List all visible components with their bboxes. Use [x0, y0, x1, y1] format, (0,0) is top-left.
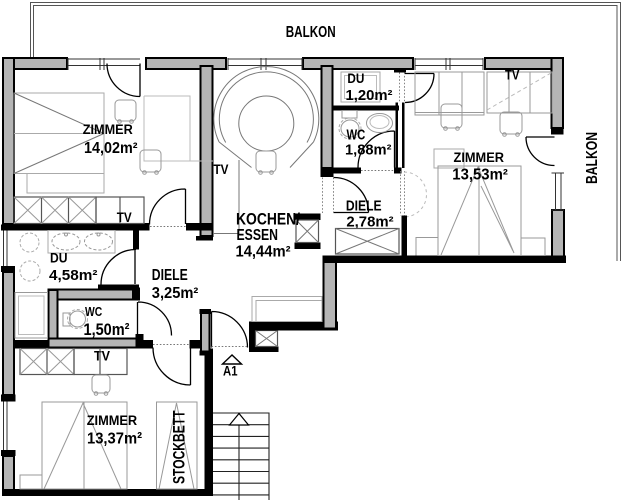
svg-text:DIELE: DIELE	[152, 267, 188, 284]
svg-text:ZIMMER: ZIMMER	[83, 122, 133, 137]
svg-text:13,53m²: 13,53m²	[452, 167, 508, 184]
svg-text:DU: DU	[50, 251, 68, 266]
svg-text:STOCKBETT: STOCKBETT	[171, 411, 189, 485]
svg-text:WC: WC	[347, 127, 366, 143]
svg-text:ESSEN: ESSEN	[237, 227, 279, 244]
svg-text:TV: TV	[94, 349, 110, 364]
svg-text:WC: WC	[85, 305, 102, 319]
svg-text:TV: TV	[505, 68, 520, 83]
svg-text:1,88m²: 1,88m²	[345, 142, 392, 158]
svg-text:13,37m²: 13,37m²	[87, 431, 142, 448]
svg-text:3,25m²: 3,25m²	[152, 285, 199, 302]
svg-text:BALKON: BALKON	[286, 24, 336, 41]
svg-text:TV: TV	[117, 210, 132, 225]
svg-text:TV: TV	[214, 162, 229, 177]
svg-text:ZIMMER: ZIMMER	[87, 413, 138, 428]
svg-text:BALKON: BALKON	[584, 132, 601, 184]
svg-text:1,20m²: 1,20m²	[346, 88, 393, 104]
svg-text:DIELE: DIELE	[346, 198, 382, 214]
svg-text:14,44m²: 14,44m²	[236, 244, 291, 261]
svg-text:KOCHEN/: KOCHEN/	[236, 211, 300, 229]
svg-text:14,02m²: 14,02m²	[84, 140, 138, 157]
svg-text:1,50m²: 1,50m²	[84, 321, 130, 339]
svg-text:ZIMMER: ZIMMER	[454, 150, 505, 165]
svg-text:4,58m²: 4,58m²	[49, 268, 98, 284]
svg-text:DU: DU	[347, 71, 364, 86]
svg-text:A1: A1	[223, 364, 238, 379]
